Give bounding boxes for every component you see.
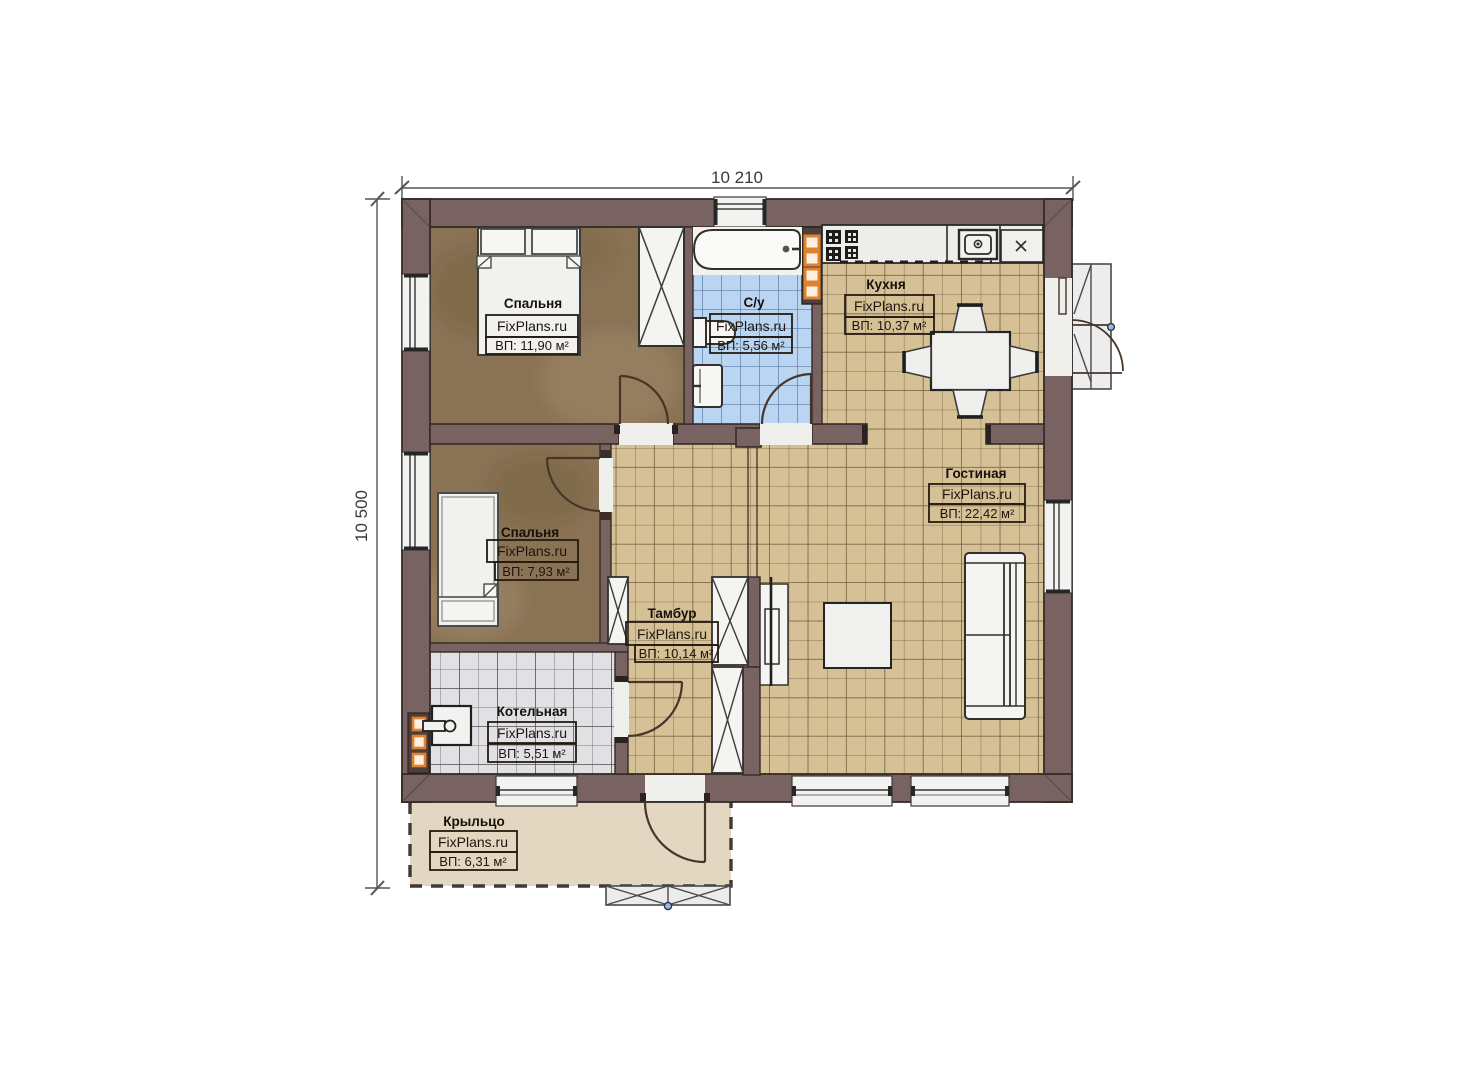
- svg-text:FixPlans.ru: FixPlans.ru: [497, 318, 567, 334]
- svg-text:FixPlans.ru: FixPlans.ru: [637, 626, 707, 642]
- svg-text:ВП: 7,93 м²: ВП: 7,93 м²: [502, 564, 570, 579]
- svg-text:ВП: 10,37 м²: ВП: 10,37 м²: [852, 318, 927, 333]
- svg-text:ВП: 11,90 м²: ВП: 11,90 м²: [495, 338, 569, 353]
- svg-text:ВП: 22,42 м²: ВП: 22,42 м²: [940, 506, 1015, 521]
- svg-text:Спальня: Спальня: [501, 525, 559, 540]
- svg-text:Котельная: Котельная: [497, 704, 568, 719]
- svg-text:ВП: 10,14 м²: ВП: 10,14 м²: [639, 646, 714, 661]
- svg-text:Спальня: Спальня: [504, 296, 562, 311]
- svg-text:Тамбур: Тамбур: [648, 606, 697, 621]
- svg-text:FixPlans.ru: FixPlans.ru: [497, 543, 567, 559]
- svg-text:FixPlans.ru: FixPlans.ru: [942, 486, 1012, 502]
- svg-text:С/у: С/у: [743, 295, 765, 310]
- svg-text:FixPlans.ru: FixPlans.ru: [854, 298, 924, 314]
- svg-text:Крыльцо: Крыльцо: [443, 814, 504, 829]
- svg-text:FixPlans.ru: FixPlans.ru: [716, 318, 786, 334]
- svg-text:Гостиная: Гостиная: [945, 466, 1006, 481]
- svg-text:FixPlans.ru: FixPlans.ru: [438, 834, 508, 850]
- svg-text:ВП: 5,56 м²: ВП: 5,56 м²: [717, 338, 785, 353]
- svg-text:ВП: 5,51 м²: ВП: 5,51 м²: [498, 746, 566, 761]
- svg-text:FixPlans.ru: FixPlans.ru: [497, 725, 567, 741]
- svg-text:10 500: 10 500: [352, 490, 371, 542]
- svg-text:ВП: 6,31 м²: ВП: 6,31 м²: [439, 854, 507, 869]
- svg-text:Кухня: Кухня: [866, 277, 905, 292]
- svg-text:10 210: 10 210: [711, 168, 763, 187]
